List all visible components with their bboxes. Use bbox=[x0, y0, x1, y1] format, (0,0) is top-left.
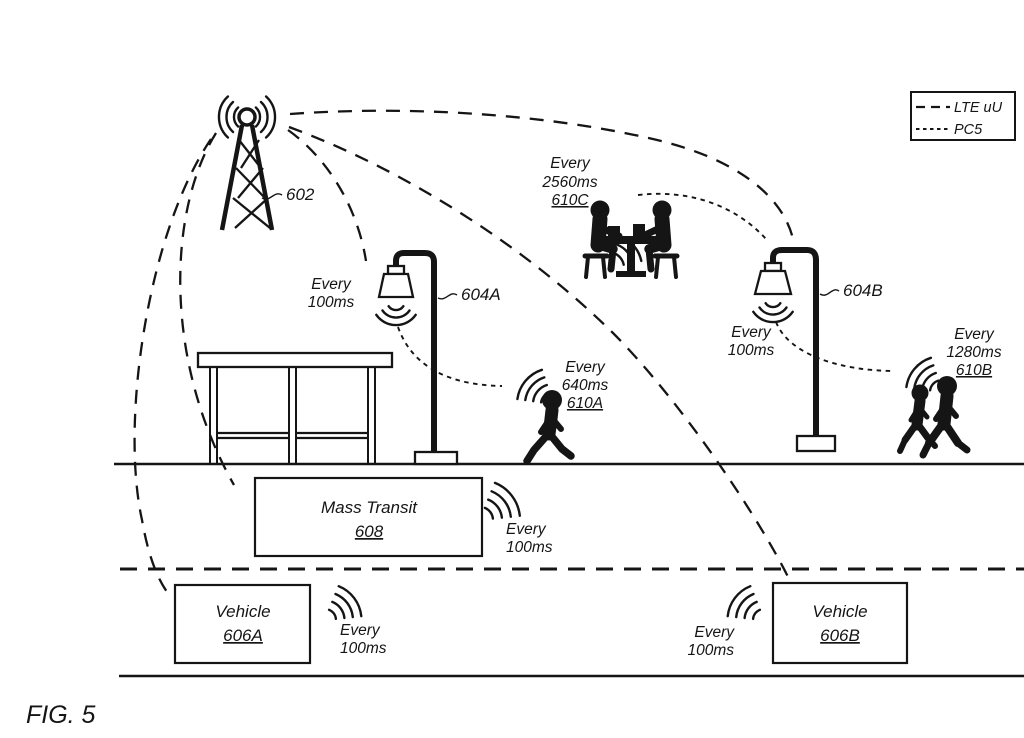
vehicle-b-box bbox=[773, 583, 907, 663]
lamp-cap bbox=[765, 263, 781, 271]
figure-canvas: 602 604A Every 100ms 604B Every 100ms bbox=[0, 0, 1024, 738]
lamp-shade bbox=[755, 271, 791, 294]
patent-figure-page: 602 604A Every 100ms 604B Every 100ms bbox=[0, 0, 1024, 738]
pole-base bbox=[415, 452, 457, 464]
tower-signal-right bbox=[256, 97, 275, 138]
link-light-a-to-ped-a bbox=[398, 327, 502, 386]
vehicle-b-ref-label: 606B bbox=[820, 626, 860, 645]
signal-arc bbox=[906, 358, 931, 387]
vehicle-b-node: Vehicle 606B Every 100ms bbox=[687, 583, 907, 663]
figure-caption: FIG. 5 bbox=[26, 701, 96, 729]
signal-arc bbox=[753, 610, 760, 619]
legend-pc5-label: PC5 bbox=[954, 122, 983, 138]
vehicle-a-box bbox=[175, 585, 310, 663]
cell-tower-icon: 602 bbox=[219, 97, 315, 231]
signal-arc bbox=[760, 308, 787, 315]
signal-arc bbox=[389, 306, 404, 310]
vehicle-a-label: Vehicle bbox=[215, 602, 270, 621]
vehicle-b-beacon-line2: 100ms bbox=[687, 642, 734, 659]
legend: LTE uU PC5 bbox=[911, 92, 1015, 140]
table-base bbox=[616, 271, 646, 277]
signal-arc bbox=[517, 370, 542, 399]
light-b-beacon-line1: Every bbox=[731, 324, 772, 341]
vehicle-b-beacon-line1: Every bbox=[694, 624, 735, 641]
vehicle-b-label: Vehicle bbox=[812, 602, 867, 621]
light-a-signal bbox=[376, 306, 415, 325]
ped-b-beacon-line2: 1280ms bbox=[946, 344, 1001, 361]
vehicle-a-ref-label: 606A bbox=[223, 626, 263, 645]
light-a-beacon-line2: 100ms bbox=[308, 294, 355, 311]
mass-transit-ref-label: 608 bbox=[355, 522, 384, 541]
vehicle-a-node: Vehicle 606A Every 100ms bbox=[175, 585, 387, 663]
light-a-beacon-line1: Every bbox=[311, 276, 352, 293]
ped-b-beacon-line1: Every bbox=[954, 326, 995, 343]
signal-arc bbox=[485, 508, 493, 519]
table-beacon-line1: Every bbox=[550, 155, 591, 172]
street-light-604b-icon: 604B Every 100ms bbox=[728, 250, 883, 451]
signal-arc bbox=[261, 102, 268, 132]
shelter-rails bbox=[217, 433, 368, 438]
light-a-ref-label: 604A bbox=[461, 285, 501, 304]
light-a-ref-leader bbox=[438, 294, 457, 299]
antenna-head bbox=[239, 109, 255, 125]
light-b-ref-leader bbox=[820, 290, 839, 295]
people-at-table-icon bbox=[585, 201, 677, 278]
pole-base bbox=[797, 436, 835, 451]
tower-ref-label: 602 bbox=[286, 185, 315, 204]
lamp-shade bbox=[379, 274, 413, 297]
signal-arc bbox=[329, 610, 336, 619]
shelter-roof bbox=[198, 353, 392, 367]
lamp-cap bbox=[388, 266, 404, 274]
mass-transit-box bbox=[255, 478, 482, 556]
mass-transit-beacon-line2: 100ms bbox=[506, 539, 553, 556]
tower-signal-left bbox=[219, 97, 238, 138]
light-b-ref-label: 604B bbox=[843, 281, 883, 300]
bus-shelter-icon bbox=[198, 353, 392, 464]
signal-arc bbox=[766, 303, 781, 307]
ped-b-ref-label: 610B bbox=[956, 362, 992, 379]
mass-transit-label: Mass Transit bbox=[321, 498, 418, 517]
signal-arc bbox=[226, 102, 233, 132]
mass-transit-node: Mass Transit 608 Every 100ms bbox=[255, 478, 553, 556]
signal-arc bbox=[383, 311, 410, 318]
table-item bbox=[633, 224, 645, 236]
ped-a-beacon-line2: 640ms bbox=[562, 377, 609, 394]
link-light-b-to-ped-b bbox=[776, 322, 891, 371]
table-beacon-line2: 2560ms bbox=[541, 174, 597, 191]
table-ref-label: 610C bbox=[551, 192, 589, 209]
mass-transit-beacon-line1: Every bbox=[506, 521, 547, 538]
vehicle-a-signal bbox=[329, 586, 361, 619]
ped-a-ref-label: 610A bbox=[567, 395, 603, 412]
light-b-beacon-line2: 100ms bbox=[728, 342, 775, 359]
vehicle-a-beacon-line1: Every bbox=[340, 622, 381, 639]
mass-transit-signal bbox=[485, 483, 520, 519]
ped-a-beacon-line1: Every bbox=[565, 359, 606, 376]
vehicle-a-beacon-line2: 100ms bbox=[340, 640, 387, 657]
signal-arc bbox=[495, 483, 520, 516]
signal-arc bbox=[488, 500, 502, 518]
legend-lte-label: LTE uU bbox=[954, 100, 1003, 116]
vehicle-b-signal bbox=[728, 586, 760, 619]
light-b-signal bbox=[753, 303, 792, 322]
ped-b-signal bbox=[906, 358, 938, 391]
